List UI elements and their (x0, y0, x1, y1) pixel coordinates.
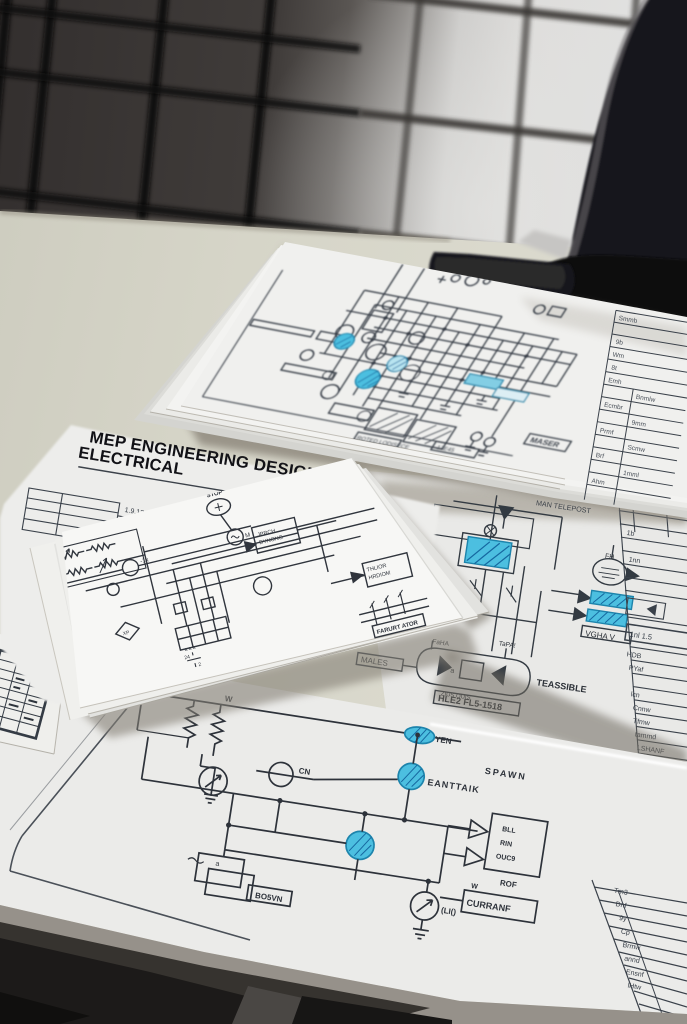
svg-text:FH: FH (604, 553, 614, 561)
svg-text:lcn: lcn (630, 691, 640, 699)
svg-text:1b: 1b (626, 530, 635, 538)
svg-text:Brf: Brf (595, 452, 605, 460)
svg-text:CN: CN (298, 766, 311, 777)
